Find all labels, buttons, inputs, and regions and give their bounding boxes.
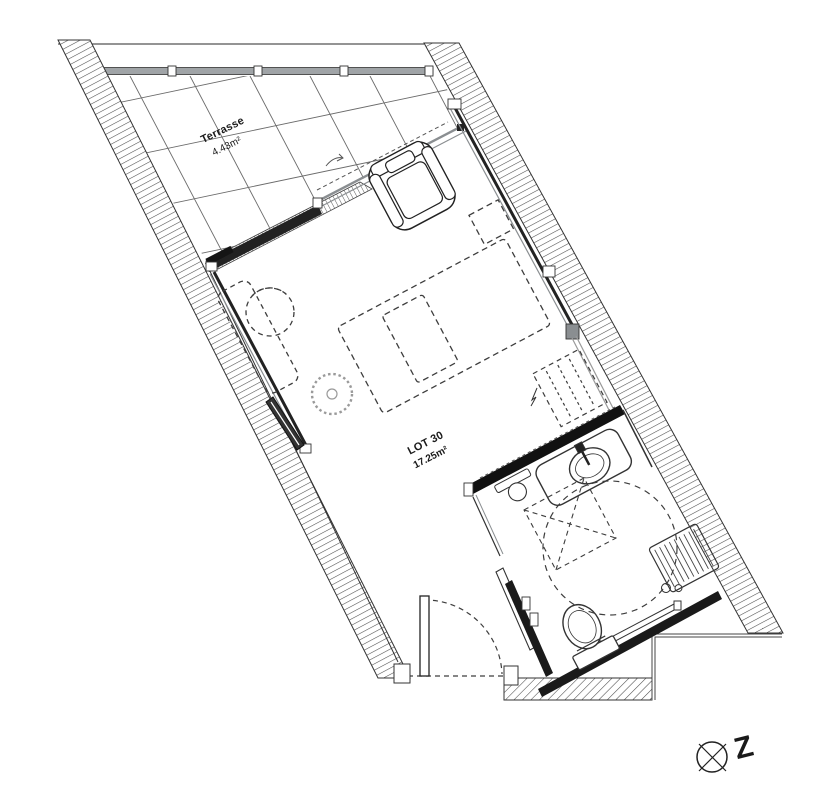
- window-frame-cap: [448, 99, 461, 109]
- north-letter: Z: [731, 730, 757, 766]
- wall-northwest: [58, 40, 410, 678]
- northeast-window: [448, 99, 614, 412]
- wall-end-cap: [464, 483, 473, 496]
- door-jamb: [394, 664, 410, 683]
- low-wall: [205, 205, 322, 272]
- northwest-window: [206, 262, 398, 662]
- entrance-door: [394, 596, 518, 685]
- floor-plan-page: Terrasse 4.43m²: [0, 0, 817, 800]
- floor-plan-drawing: Terrasse 4.43m²: [0, 0, 817, 800]
- wall-northeast: [424, 43, 783, 633]
- sliding-door-rail: [505, 580, 553, 677]
- window-frame-cap: [313, 198, 322, 208]
- window-frame-cap: [206, 262, 217, 271]
- exterior-step-line: [655, 637, 782, 700]
- northeast-glazing: [454, 106, 576, 332]
- terrace-railing: [82, 66, 433, 76]
- door-leaf: [420, 596, 429, 676]
- door-handle: [522, 597, 530, 610]
- door-swing-arc: [424, 600, 502, 674]
- door-jamb: [504, 666, 518, 685]
- bed-duvet: [382, 294, 458, 383]
- shower-drain: [660, 582, 672, 594]
- terrace-arrow-icon: [326, 154, 343, 166]
- plant: [312, 374, 352, 414]
- window-frame-cap: [543, 266, 555, 277]
- north-compass: Z: [697, 730, 757, 772]
- closet: [533, 349, 607, 426]
- door-handle: [530, 613, 538, 626]
- closet-arrow-icon: [531, 388, 537, 406]
- sliding-door: [473, 495, 553, 677]
- armchair: [364, 137, 461, 235]
- bed: [320, 200, 562, 414]
- wall-inner-line: [206, 263, 398, 662]
- desk-chair: [246, 288, 294, 336]
- terrace-label: Terrasse 4.43m²: [199, 115, 246, 159]
- lot-label: LOT 30 17.25m²: [406, 429, 451, 471]
